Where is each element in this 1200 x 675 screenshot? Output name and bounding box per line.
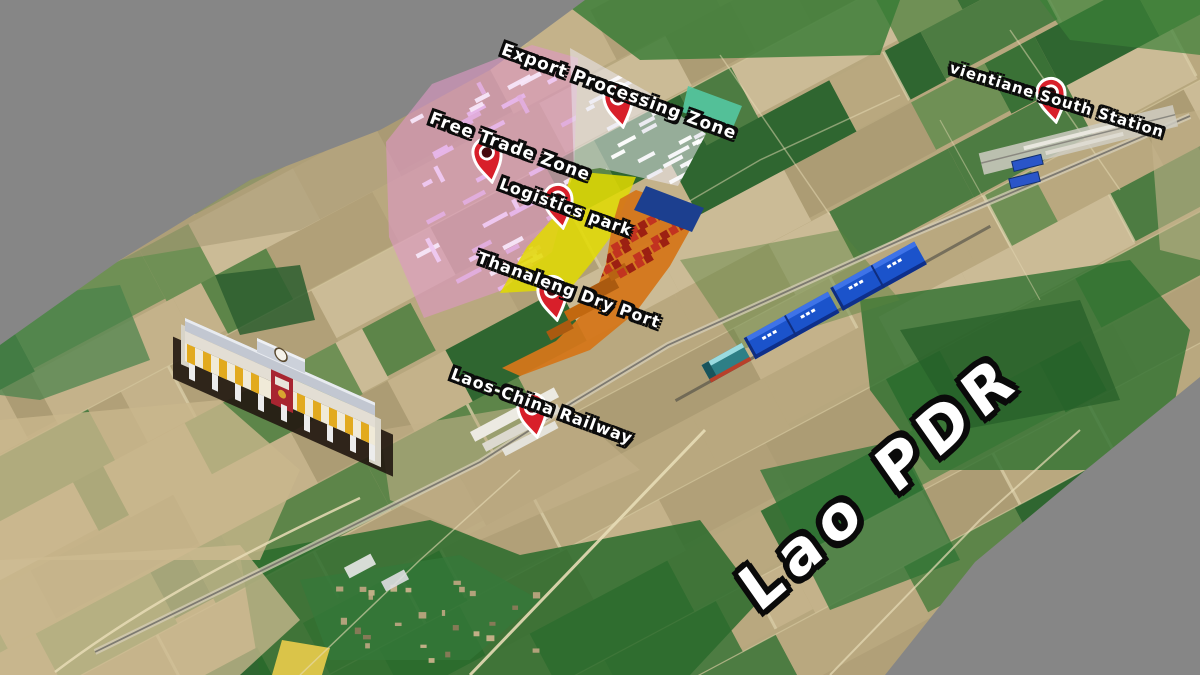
map-screenshot: Export Processing Zone Free Trade Zone L… <box>0 0 1200 675</box>
